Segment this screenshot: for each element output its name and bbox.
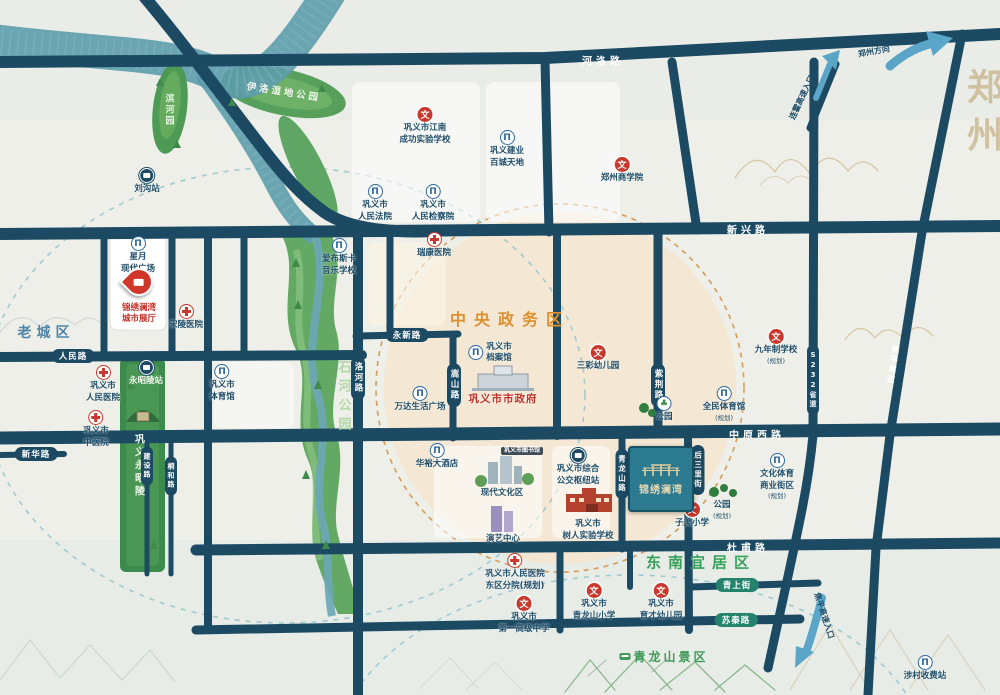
poi-jianye[interactable]: Π 巩义建业 百城天地 (490, 130, 524, 168)
bus-station-icon[interactable] (138, 360, 153, 375)
poi-public-gym[interactable]: Π 全民体育馆 (规划) (703, 386, 746, 422)
poi-music-school[interactable]: Π 爱布斯卡 音乐学校 (322, 238, 356, 276)
pill-qls-road: 青龙山路 (616, 449, 629, 499)
poi-gymnasium[interactable]: Π 巩义市 体育馆 (209, 364, 235, 402)
zone-old-town: 老城区 (18, 322, 75, 342)
poi-east-hospital-branch[interactable]: 巩义市人民医院 东区分院(规划) (485, 553, 545, 591)
showroom-label: 城市展厅 (122, 314, 156, 325)
poi-qls-primary[interactable]: 文 巩义市 青龙山小学 (573, 583, 616, 621)
location-pin-icon[interactable] (119, 262, 159, 302)
poi-songling-hospital[interactable]: 宋陵医院 (169, 304, 203, 331)
poi-label: 星月 (129, 252, 146, 263)
road-zhongyuanxi: 中原西路 (729, 427, 785, 442)
label-layer: 老城区 中央政务区 东南宜居区 郑州 石河公园 滨河园 巩义永昭陵 伊洛湿地公园… (0, 0, 1000, 695)
poi-court[interactable]: Π 巩义市 人民法院 (358, 184, 392, 222)
pill-jianshe: 建设路 (141, 447, 153, 486)
road-jiaoping: 焦平高速 (884, 344, 901, 385)
park-yiluo-label: 伊洛湿地公园 (246, 78, 322, 104)
pill-suqin: 苏秦路 (715, 613, 758, 627)
poi-shuren-school[interactable]: 巩义市 树人实验学校 (562, 519, 613, 541)
park-shihe-label: 石河公园 (334, 360, 353, 436)
road-heluo: 河洛路 (582, 53, 624, 68)
road-dufu: 杜甫路 (727, 540, 769, 555)
school-icon[interactable]: 文 (590, 345, 605, 360)
project-name: 锦绣澜湾 (639, 481, 683, 496)
poi-procuratorate[interactable]: Π 巩义市 人民检察院 (412, 184, 455, 222)
park-icon[interactable]: ♣ (656, 396, 671, 411)
hospital-icon[interactable] (95, 365, 110, 380)
school-icon[interactable]: 文 (516, 596, 531, 611)
building-icon[interactable]: Π (769, 453, 784, 468)
poi-modern-culture-district[interactable]: 现代文化区 (481, 488, 524, 499)
pill-s232: S232省道 (807, 345, 819, 415)
zone-southeast: 东南宜居区 (646, 552, 756, 573)
poi-wanda-plaza[interactable]: Π 万达生活广场 (394, 386, 445, 413)
pill-qingshang: 青上街 (716, 578, 759, 592)
pill-xinhua: 新华路 (15, 447, 58, 461)
dir-lianhuo: 连霍高速入口 (787, 73, 817, 121)
poi-park-1[interactable]: ♣ 公园 (655, 396, 672, 423)
dir-zhengzhou: 郑州方向 (857, 43, 890, 59)
poi-yucai-kindergarten[interactable]: 文 巩义市 育才幼儿园 (640, 583, 683, 621)
bus-station-icon[interactable] (570, 448, 585, 463)
poi-sancai-kindergarten[interactable]: 文 三彩幼儿园 (577, 345, 620, 372)
building-icon[interactable]: Π (130, 236, 145, 251)
poi-ruikang-hospital[interactable]: 瑞康医院 (417, 232, 451, 259)
government-icon[interactable]: Π (425, 184, 440, 199)
stadium-icon[interactable]: Π (214, 364, 229, 379)
park-binhe-label: 滨河园 (163, 94, 176, 127)
mall-icon[interactable]: Π (412, 386, 427, 401)
zone-zhengzhou: 郑州 (955, 68, 1000, 164)
poi-yzl-station[interactable]: 永昭陵站 (129, 360, 163, 387)
project-showroom-pin[interactable]: 锦绣澜湾 城市展厅 (122, 268, 156, 324)
poi-peoples-hospital[interactable]: 巩义市 人民医院 (86, 365, 120, 403)
poi-city-government[interactable]: 巩义市市政府 (469, 393, 538, 406)
toll-gate-icon[interactable]: Π (917, 655, 932, 670)
showroom-label: 锦绣澜湾 (122, 303, 156, 314)
building-icon[interactable]: Π (331, 238, 346, 253)
bus-station-icon[interactable] (139, 168, 154, 183)
poi-label: 刘沟站 (134, 184, 160, 195)
school-icon[interactable]: 文 (653, 583, 668, 598)
hospital-icon[interactable] (178, 304, 193, 319)
school-icon[interactable]: 文 (586, 583, 601, 598)
school-icon[interactable]: 文 (417, 107, 432, 122)
pill-songshan: 嵩山路 (447, 363, 461, 407)
poi-qls-scenic-area[interactable]: 青龙山景区 (619, 648, 708, 665)
poi-toll-gate[interactable]: Π 涉村收费站 (904, 655, 947, 682)
poi-bus-hub[interactable]: 巩义市综合 公交枢纽站 (557, 448, 600, 486)
school-icon[interactable]: 文 (614, 157, 629, 172)
poi-liugou-station[interactable]: 刘沟站 (134, 168, 160, 195)
building-icon[interactable]: Π (499, 130, 514, 145)
pill-luohe: 洛河路 (351, 356, 365, 400)
poi-culture-sports-block[interactable]: Π 文化体育 商业街区 (规划) (760, 453, 794, 500)
poi-park-2[interactable]: 公园 (规划) (713, 500, 731, 520)
road-xinxing: 新兴路 (727, 222, 769, 237)
poi-nine-year-school[interactable]: 文 九年制学校 (规划) (755, 329, 798, 365)
hospital-icon[interactable] (507, 553, 522, 568)
poi-huayu-hotel[interactable]: Π 华裕大酒店 (416, 443, 459, 470)
hotel-icon[interactable]: Π (429, 443, 444, 458)
stadium-icon[interactable]: Π (716, 386, 731, 401)
poi-performing-arts-center[interactable]: 演艺中心 (486, 534, 520, 545)
poi-business-college[interactable]: 文 郑州商学院 (601, 157, 644, 184)
government-icon[interactable]: Π (367, 184, 382, 199)
poi-library-banner: 巩义市图书馆 (501, 447, 543, 455)
project-logo-box[interactable]: 锦绣澜湾 (628, 446, 694, 512)
pill-tonghe: 桐和路 (165, 457, 177, 496)
scenic-bus-icon (619, 653, 630, 660)
government-icon[interactable]: Π (468, 345, 483, 360)
school-icon[interactable]: 文 (768, 329, 783, 344)
poi-archives[interactable]: Π 巩义市 档案馆 (468, 342, 512, 363)
hospital-icon[interactable] (426, 232, 441, 247)
dir-jiaoping: 焦平高速入口 (811, 591, 836, 640)
poi-jiangnan-school[interactable]: 文 巩义市江南 成功实验学校 (399, 107, 450, 145)
city-location-map: 老城区 中央政务区 东南宜居区 郑州 石河公园 滨河园 巩义永昭陵 伊洛湿地公园… (0, 0, 1000, 695)
hospital-icon[interactable] (88, 410, 103, 425)
zone-central-admin: 中央政务区 (450, 306, 570, 330)
poi-first-high-school[interactable]: 文 巩义市 第一高级中学 (498, 596, 549, 634)
pill-yongxin: 永新路 (386, 328, 429, 342)
pill-renmin-road: 人民路 (52, 349, 95, 363)
poi-tcm-hospital[interactable]: 巩义市 中医院 (83, 410, 109, 448)
gate-logo-icon (641, 462, 681, 478)
